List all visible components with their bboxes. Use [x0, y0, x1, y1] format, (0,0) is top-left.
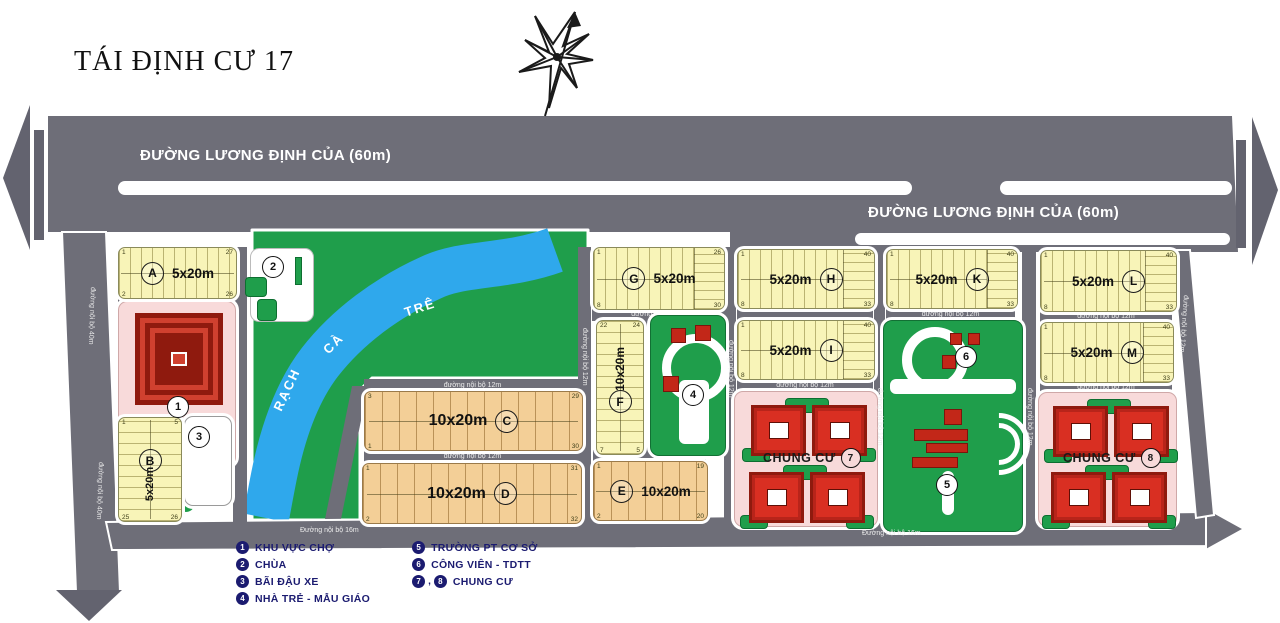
- legend-item-3: 3BÃI ĐẬU XE: [236, 575, 370, 588]
- school-park-zone: [883, 320, 1023, 532]
- lot-number: 8: [890, 301, 894, 308]
- street-vertical: [1022, 247, 1036, 523]
- marker-2: 2: [262, 256, 284, 278]
- road-median: [855, 233, 1230, 245]
- block-size: 5x20m: [144, 467, 156, 501]
- street-horizontal: đường nội bộ 12m: [737, 378, 873, 392]
- bush: [245, 277, 267, 297]
- lot-number: 1: [1044, 252, 1048, 259]
- lot-number: 8: [1044, 304, 1048, 311]
- lot-number: 1: [122, 249, 126, 256]
- street-label: đường nội bộ 12m: [1077, 384, 1135, 391]
- block-I: 5x20m I 1 40 8 33: [737, 320, 875, 380]
- legend-item-1: 1KHU VỰC CHỢ: [236, 541, 370, 554]
- lot-number: 33: [1007, 301, 1014, 308]
- lot-number: 20: [697, 513, 704, 520]
- block-size: 5x20m: [172, 266, 214, 281]
- lot-number: 5: [174, 419, 178, 426]
- lot-number: 27: [226, 249, 233, 256]
- block-size: 10x20m: [429, 412, 488, 430]
- right-street: [1172, 250, 1214, 518]
- lot-number: 26: [171, 514, 178, 521]
- lot-number: 5: [636, 447, 640, 454]
- block-letter: A: [141, 262, 164, 285]
- street-label: đường nội bộ 12m: [922, 311, 980, 318]
- lot-number: 1: [741, 251, 745, 258]
- lot-number: 29: [572, 393, 579, 400]
- lot-number: 30: [572, 443, 579, 450]
- lot-number: 33: [1163, 375, 1170, 382]
- block-letter: M: [1121, 341, 1144, 364]
- lot-number: 8: [597, 302, 601, 309]
- apartment-building: [1112, 472, 1167, 523]
- page-title: TÁI ĐỊNH CƯ 17: [74, 46, 294, 78]
- street-label-12m: đường nội bộ 12m: [876, 388, 883, 446]
- block-size: 5x20m: [1072, 274, 1114, 289]
- lot-number: 1: [122, 419, 126, 426]
- lot-number: 40: [1166, 252, 1173, 259]
- street-horizontal: [737, 307, 873, 321]
- block-letter: K: [966, 268, 989, 291]
- legend-item-7-8: 7 , 8 CHUNG CƯ: [412, 575, 538, 588]
- compass-rose-icon: [505, 0, 597, 122]
- marker-4: 4: [682, 384, 704, 406]
- block-C: 10x20m C 3 29 1 30: [364, 391, 583, 451]
- block-letter: D: [494, 482, 517, 505]
- lot-number: 7: [600, 447, 604, 454]
- legend-item-2: 2CHÙA: [236, 558, 370, 571]
- lot-number: 1: [1044, 324, 1048, 331]
- lot-number: 30: [714, 302, 721, 309]
- legend-item-4: 4NHÀ TRẺ - MẪU GIÁO: [236, 592, 370, 605]
- block-L: 5x20m L 1 40 8 33: [1040, 250, 1177, 312]
- bush: [257, 299, 277, 321]
- apartment-building: [1051, 472, 1106, 523]
- street-label-12m: đường nội bộ 12m: [1026, 388, 1033, 446]
- block-size: 5x20m: [769, 272, 811, 287]
- marker-3: 3: [188, 426, 210, 448]
- lot-number: 26: [226, 291, 233, 298]
- marker-1: 1: [167, 396, 189, 418]
- lot-number: 2: [122, 291, 126, 298]
- lot-number: 32: [571, 516, 578, 523]
- block-letter: I: [820, 339, 843, 362]
- apartment-building: [810, 472, 865, 523]
- street-label-12m: đường nội bộ 12m: [581, 328, 588, 386]
- arrow-right-bar: [1236, 140, 1246, 248]
- block-letter: E: [610, 480, 633, 503]
- arrow-left-bar: [34, 130, 44, 240]
- block-B: B 5x20m 1 5 25 26: [118, 417, 182, 522]
- lot-number: 1: [597, 249, 601, 256]
- building: [663, 376, 679, 392]
- lot-number: 1: [368, 443, 372, 450]
- lot-number: 2: [597, 513, 601, 520]
- block-size: 5x20m: [653, 271, 695, 286]
- street-label: đường nội bộ 12m: [444, 453, 502, 460]
- main-road-label: ĐƯỜNG LƯƠNG ĐỊNH CỦA (60m): [140, 147, 391, 164]
- apartment-cluster: [1051, 472, 1167, 523]
- lot-number: 19: [697, 463, 704, 470]
- block-A: A 5x20m 1 27 2 26: [118, 247, 237, 299]
- lot-number: 25: [122, 514, 129, 521]
- block-size: 10x20m: [427, 485, 486, 503]
- lot-number: 24: [633, 322, 640, 329]
- road-median: [118, 181, 912, 195]
- lot-number: 40: [1163, 324, 1170, 331]
- lot-number: 8: [741, 301, 745, 308]
- block-size: 5x20m: [915, 272, 957, 287]
- legend-item-5: 5TRƯỜNG PT CƠ SỞ: [412, 541, 538, 554]
- block-size: 10x20m: [641, 484, 691, 499]
- bottom-road-label: Đường nội bộ 16m: [862, 530, 921, 537]
- main-road-label-2: ĐƯỜNG LƯƠNG ĐỊNH CỦA (60m): [868, 204, 1119, 221]
- block-size: 5x20m: [769, 343, 811, 358]
- lot-number: 40: [864, 251, 871, 258]
- arrow-right-icon: [1252, 117, 1278, 265]
- lot-number: 40: [1007, 251, 1014, 258]
- lot-number: 1: [890, 251, 894, 258]
- lot-number: 31: [571, 465, 578, 472]
- lot-number: 26: [714, 249, 721, 256]
- lot-number: 1: [741, 322, 745, 329]
- block-M: 5x20m M 1 40 8 33: [1040, 322, 1174, 383]
- building: [968, 333, 980, 345]
- block-letter: C: [495, 410, 518, 433]
- marker-5: 5: [936, 474, 958, 496]
- block-H: 5x20m H 1 40 8 33: [737, 249, 875, 309]
- bottom-road-label: Đường nội bộ 16m: [300, 527, 359, 534]
- site-plan-map: TÁI ĐỊNH CƯ 17 ĐƯỜNG LƯƠNG ĐỊNH CỦA (60m…: [0, 0, 1280, 623]
- legend-item-6: 6CÔNG VIÊN - TDTT: [412, 558, 538, 571]
- building: [914, 429, 968, 441]
- marker-8: 8: [1141, 448, 1161, 468]
- lot-number: 33: [864, 372, 871, 379]
- lot-number: 33: [1166, 304, 1173, 311]
- block-K: 5x20m K 1 40 8 33: [886, 249, 1018, 309]
- block-size: 5x20m: [1070, 345, 1112, 360]
- arrow-down-icon: [56, 590, 122, 621]
- legend: 1KHU VỰC CHỢ 2CHÙA 3BÃI ĐẬU XE 4NHÀ TRẺ …: [236, 541, 538, 605]
- pagoda-zone: [250, 248, 314, 322]
- path: [890, 379, 1016, 394]
- building: [950, 333, 962, 345]
- block-letter: H: [820, 268, 843, 291]
- street-horizontal: đường nội bộ 12m: [364, 449, 581, 463]
- street-label: đường nội bộ 12m: [444, 382, 502, 389]
- bush: [295, 257, 302, 285]
- lot-number: 22: [600, 322, 607, 329]
- lot-number: 8: [1044, 375, 1048, 382]
- arrow-left-icon: [3, 105, 30, 250]
- block-F: 10x20m F 22 24 7 5: [596, 320, 644, 455]
- block-letter: L: [1122, 270, 1145, 293]
- block-G: G 5x20m 1 26 8 30: [593, 247, 725, 310]
- street-label: đường nội bộ 12m: [776, 382, 834, 389]
- street-label: đường nội bộ 12m: [1077, 313, 1135, 320]
- apartments-8-zone: CHUNG CƯ 8: [1038, 392, 1177, 527]
- building: [912, 457, 958, 468]
- marker-6: 6: [955, 346, 977, 368]
- block-letter: F: [609, 390, 632, 413]
- block-E: E 10x20m 1 19 2 20: [593, 461, 708, 521]
- block-letter: G: [622, 267, 645, 290]
- apartments-8-label: CHUNG CƯ 8: [1063, 448, 1161, 468]
- lot-number: 8: [741, 372, 745, 379]
- block-size: 10x20m: [613, 347, 627, 391]
- lot-number: 33: [864, 301, 871, 308]
- lot-number: 3: [368, 393, 372, 400]
- apartments-7-label: CHUNG CƯ 7: [763, 448, 861, 468]
- street-label-12m: đường nội bộ 12m: [727, 340, 734, 398]
- road-median: [1000, 181, 1232, 195]
- lot-number: 1: [366, 465, 370, 472]
- market-building: [135, 313, 223, 405]
- apartment-cluster: [749, 472, 865, 523]
- building: [926, 443, 968, 453]
- building: [942, 355, 956, 369]
- block-D: 10x20m D 1 31 2 32: [362, 463, 582, 524]
- lot-number: 40: [864, 322, 871, 329]
- building: [944, 409, 962, 425]
- apartments-7-zone: CHUNG CƯ 7: [734, 391, 878, 527]
- lot-number: 1: [597, 463, 601, 470]
- street-horizontal: đường nội bộ 12m: [886, 307, 1015, 321]
- building: [695, 325, 711, 341]
- lot-number: 2: [366, 516, 370, 523]
- marker-7: 7: [841, 448, 861, 468]
- building: [671, 328, 686, 343]
- apartment-building: [749, 472, 804, 523]
